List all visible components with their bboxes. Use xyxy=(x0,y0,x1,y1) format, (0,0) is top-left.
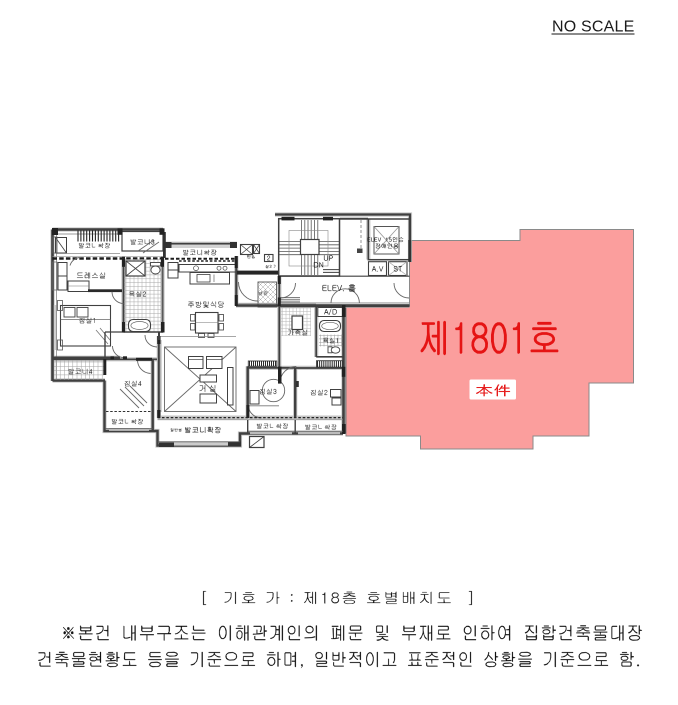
svg-text:NO SCALE: NO SCALE xyxy=(552,19,635,36)
